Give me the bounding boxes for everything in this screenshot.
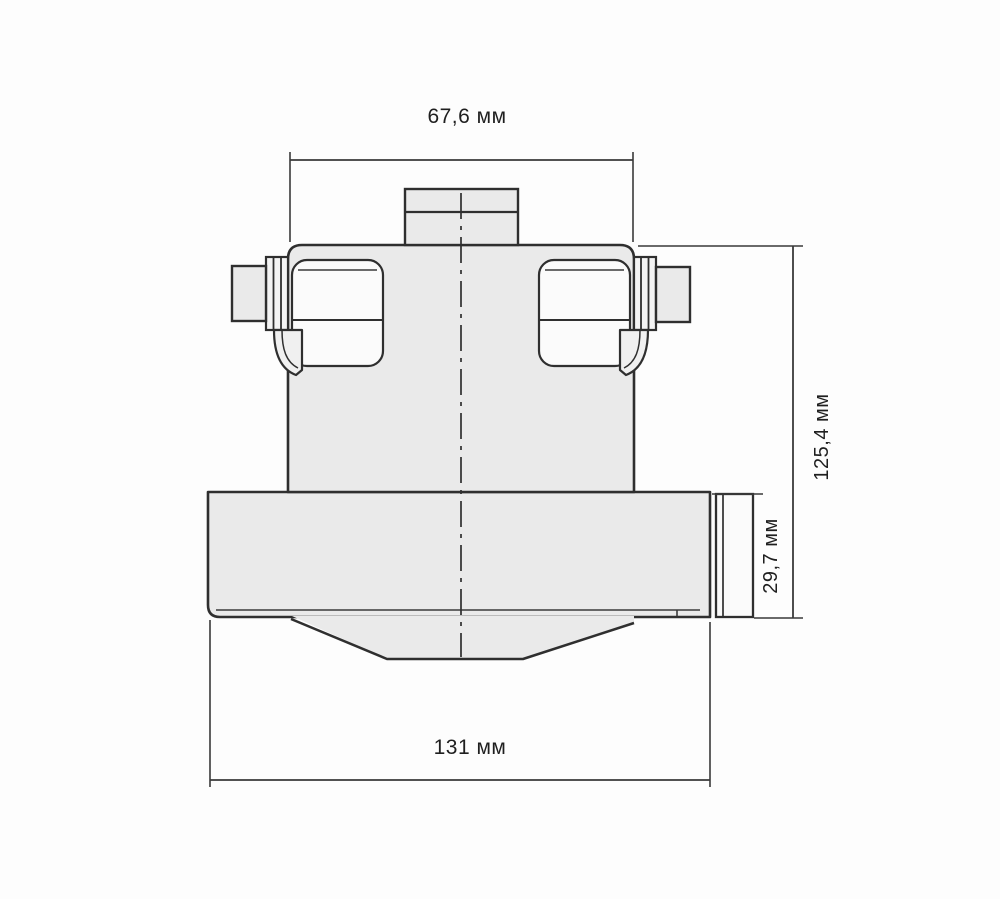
motor-dimension-drawing: 67,6 мм 125,4 мм 29,7 мм 131 мм bbox=[0, 0, 1000, 899]
fan-housing bbox=[208, 492, 710, 617]
right-window bbox=[539, 260, 630, 366]
fan-housing-end-cap bbox=[716, 494, 753, 617]
right-terminal-tab bbox=[656, 267, 690, 322]
left-terminal-bracket bbox=[266, 257, 288, 330]
dimension-label-overall-height: 125,4 мм bbox=[811, 393, 833, 480]
dimension-label-top-width: 67,6 мм bbox=[427, 105, 506, 128]
drawing-canvas: 67,6 мм 125,4 мм 29,7 мм 131 мм bbox=[0, 0, 1000, 899]
left-terminal-tab bbox=[232, 266, 266, 321]
right-window-outline bbox=[539, 260, 630, 366]
right-terminal-bracket bbox=[634, 257, 656, 330]
end-cap-body bbox=[716, 494, 753, 617]
dimension-label-bottom-width: 131 мм bbox=[434, 736, 507, 759]
left-window-outline bbox=[292, 260, 383, 366]
fan-housing-body bbox=[208, 492, 710, 617]
left-window bbox=[292, 260, 383, 366]
dimension-label-fan-height: 29,7 мм bbox=[760, 518, 782, 593]
